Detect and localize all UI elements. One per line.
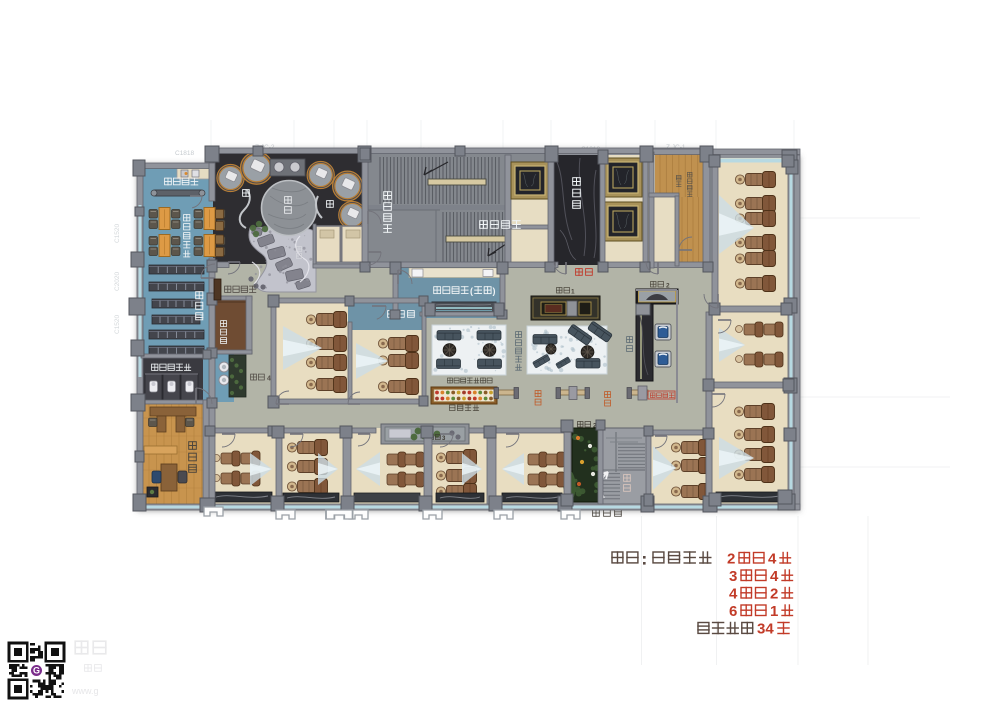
svg-text:www.g: www.g [71,686,99,696]
svg-text:2: 2 [770,586,778,603]
svg-text:4: 4 [729,586,738,603]
svg-text:4: 4 [770,568,779,585]
svg-text:1: 1 [770,603,778,620]
svg-text:G: G [33,666,40,676]
svg-text:6: 6 [729,603,737,620]
svg-text:2: 2 [727,551,735,568]
svg-text:C1520: C1520 [114,223,121,243]
svg-text:1: 1 [571,289,575,296]
svg-text:C2020: C2020 [114,271,121,291]
svg-text:): ) [493,286,496,296]
svg-text:4: 4 [267,376,271,383]
svg-text:4: 4 [768,551,777,568]
svg-text:34: 34 [757,621,774,638]
svg-text:C1520: C1520 [114,314,121,334]
svg-text:C1818: C1818 [175,150,195,157]
svg-text:(: ( [470,286,473,296]
svg-text:3: 3 [729,568,737,585]
svg-text:2: 2 [666,283,670,290]
